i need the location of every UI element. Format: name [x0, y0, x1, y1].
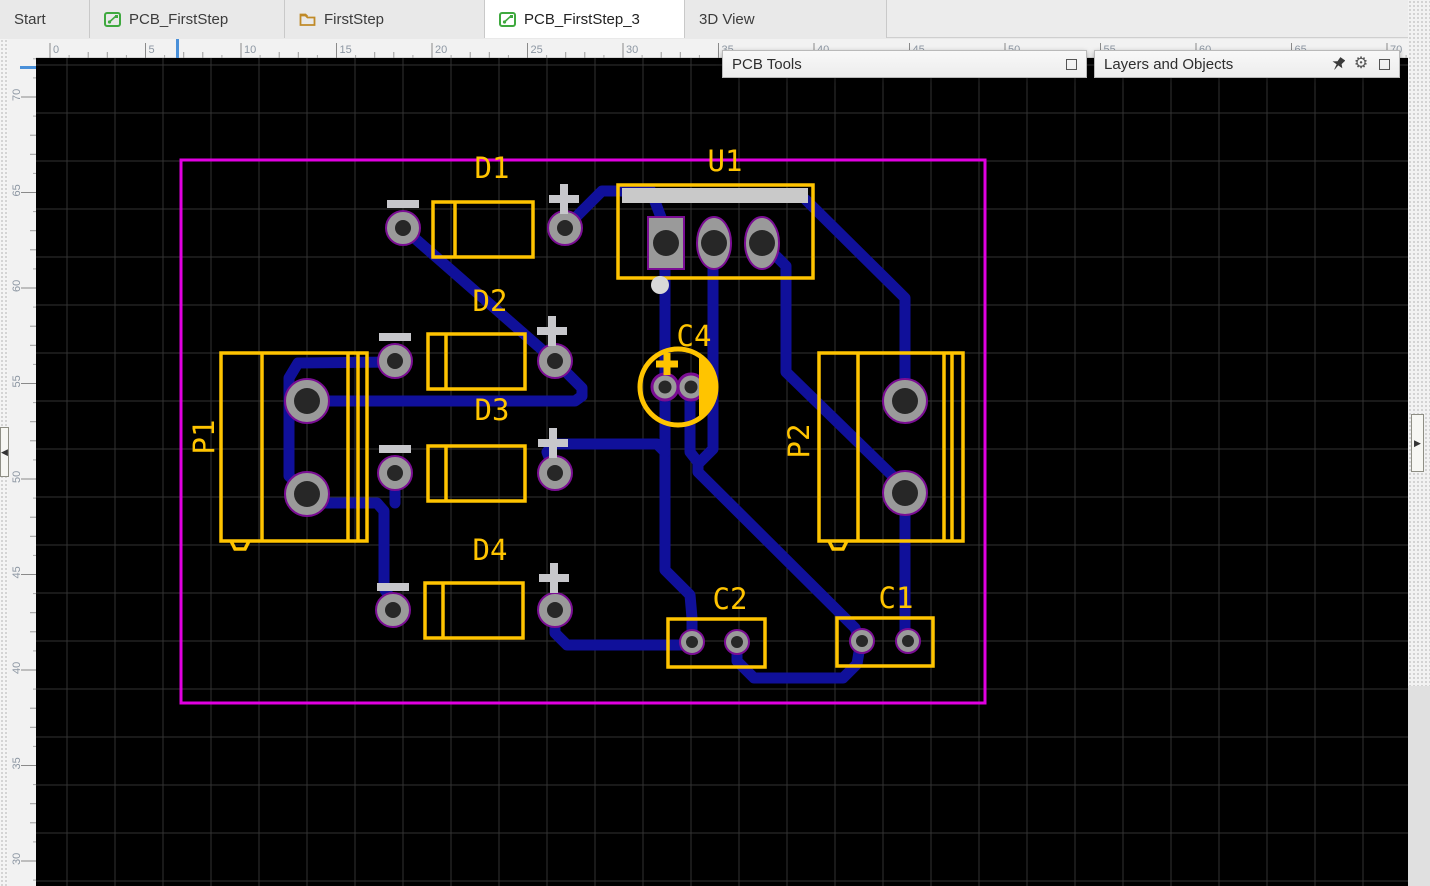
tab-pcb-firststep[interactable]: PCB_FirstStep	[90, 0, 285, 38]
ruler-label: 60	[11, 280, 23, 292]
pad-hole	[547, 353, 563, 369]
ruler-label: 30	[11, 853, 23, 865]
pad-hole	[653, 230, 679, 256]
tab-label: 3D View	[699, 11, 755, 28]
ruler-cursor-marker	[20, 66, 36, 69]
pad-hole	[385, 602, 401, 618]
gear-icon[interactable]: ⚙	[1353, 56, 1369, 72]
component-ref-label: D2	[473, 284, 508, 318]
copper-trace	[737, 644, 860, 678]
pad-hole	[387, 353, 403, 369]
ruler-label: 5	[149, 44, 155, 56]
component-ref-label: U1	[708, 144, 743, 178]
pad-hole	[387, 465, 403, 481]
tab-label: PCB_FirstStep	[129, 11, 228, 28]
component-ref-label: D3	[475, 393, 510, 427]
tab-firststep[interactable]: FirstStep	[285, 0, 485, 38]
board-outline	[181, 160, 985, 703]
ruler-label: 10	[244, 44, 256, 56]
pcb-tools-panel[interactable]: PCB Tools	[722, 50, 1087, 78]
ruler-label: 65	[11, 184, 23, 196]
ruler-label: 20	[435, 44, 447, 56]
component-ref-label: C2	[713, 582, 748, 616]
ruler-label: 70	[11, 89, 23, 101]
arrow-left-icon: ◀	[1, 447, 8, 458]
tab-label: PCB_FirstStep_3	[524, 11, 640, 28]
grid	[36, 58, 1408, 886]
collapse-box-icon[interactable]	[1063, 56, 1079, 72]
pin-icon[interactable]	[1330, 56, 1346, 72]
diode-body	[428, 446, 525, 501]
panel-title: PCB Tools	[723, 56, 1063, 73]
pad-hole	[547, 602, 563, 618]
ruler-label: 15	[340, 44, 352, 56]
tab-start[interactable]: Start	[0, 0, 90, 38]
right-strip-block	[1408, 686, 1430, 886]
u1-heatsink-bar	[622, 188, 808, 203]
ruler-label: 45	[11, 566, 23, 578]
component-ref-label: P1	[187, 420, 221, 455]
ruler-label: 30	[626, 44, 638, 56]
component-ref-label: D1	[475, 151, 510, 185]
ruler-label: 25	[531, 44, 543, 56]
copper-trace	[555, 610, 692, 645]
pad-hole	[892, 388, 918, 414]
ruler-label: 55	[11, 375, 23, 387]
diode-body	[425, 583, 523, 638]
pad-hole	[686, 636, 698, 648]
collapse-right-handle[interactable]: ▶	[1411, 414, 1424, 472]
pcb-canvas[interactable]: D1D2D3D4U1C4C2C1P1P2	[36, 58, 1408, 886]
ruler-corner	[8, 39, 36, 58]
tab-bar: Start PCB_FirstStep FirstStep PCB_FirstS…	[0, 0, 1408, 38]
collapse-box-icon[interactable]	[1376, 56, 1392, 72]
collapse-left-handle[interactable]: ◀	[0, 427, 9, 477]
pcb-file-icon	[499, 12, 516, 27]
arrow-right-icon: ▶	[1414, 438, 1421, 449]
pad-hole	[856, 635, 868, 647]
panel-title: Layers and Objects	[1095, 56, 1330, 73]
u1-pin1-dot	[651, 276, 669, 294]
pad-hole	[557, 220, 573, 236]
tab-3d-view[interactable]: 3D View	[685, 0, 887, 38]
component-ref-label: C1	[879, 581, 914, 615]
pcb-file-icon	[104, 12, 121, 27]
ruler-label: 35	[11, 757, 23, 769]
ruler-cursor-marker	[176, 39, 179, 58]
p2-body	[819, 353, 963, 541]
ruler-left: 706560555045403530	[8, 58, 36, 886]
pad-hole	[685, 381, 698, 394]
ruler-label: 0	[53, 44, 59, 56]
pad-hole	[294, 481, 320, 507]
pad-hole	[749, 230, 775, 256]
pad-hole	[701, 230, 727, 256]
copper-trace	[806, 200, 905, 401]
folder-icon	[299, 12, 316, 27]
ruler-label: 50	[11, 471, 23, 483]
diode-body	[433, 202, 533, 257]
pad-hole	[659, 381, 672, 394]
pcb-editor-window: Start PCB_FirstStep FirstStep PCB_FirstS…	[0, 0, 1430, 886]
pad-hole	[892, 480, 918, 506]
tab-label: FirstStep	[324, 11, 384, 28]
ruler-label: 40	[11, 662, 23, 674]
pad-hole	[902, 635, 914, 647]
pad-hole	[294, 388, 320, 414]
tab-label: Start	[14, 11, 46, 28]
pad-hole	[395, 220, 411, 236]
layers-and-objects-panel[interactable]: Layers and Objects ⚙	[1094, 50, 1400, 78]
pad-hole	[731, 636, 743, 648]
component-ref-label: C4	[677, 319, 712, 353]
component-ref-label: D4	[473, 533, 508, 567]
diode-body	[428, 334, 525, 389]
component-ref-label: P2	[782, 424, 816, 459]
pad-hole	[547, 465, 563, 481]
tab-pcb-firststep-3[interactable]: PCB_FirstStep_3	[485, 0, 685, 38]
